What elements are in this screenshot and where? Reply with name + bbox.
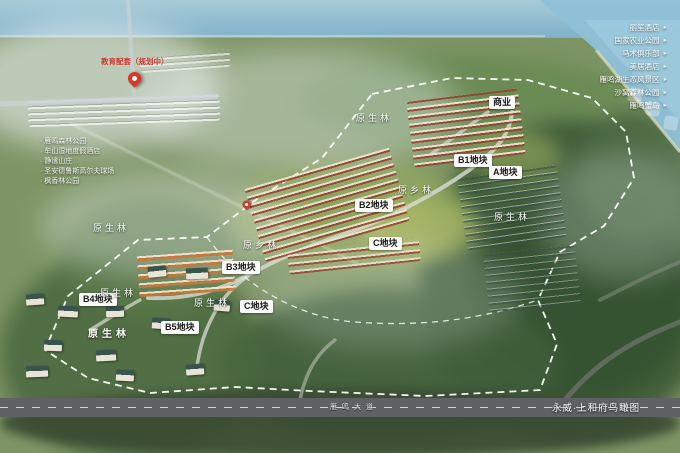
plot-label-b5: B5地块 (161, 321, 199, 334)
villa-building (106, 306, 124, 318)
villa-building (26, 293, 45, 305)
forest-label: 原乡林 (243, 238, 279, 251)
forest-label: 原生林 (194, 296, 230, 309)
amenity-item: 国家农业公园► (600, 35, 668, 48)
amenity-item: 马术俱乐部► (600, 48, 668, 61)
amenity-item: 美居酒店► (600, 61, 668, 74)
plot-label-a: A地块 (489, 166, 522, 179)
forest-label: 原生林 (100, 286, 136, 299)
amenity-item: 雁鸣森林公园 (40, 137, 114, 147)
watermark-icon (645, 101, 661, 117)
villa-building (186, 267, 209, 279)
arrow-icon: ► (663, 36, 668, 47)
amenity-item: 雁鸣湖生态风景区► (600, 74, 668, 87)
arrow-icon: ► (663, 101, 668, 112)
arrow-icon: ► (663, 88, 668, 99)
watermark-icon (663, 115, 679, 131)
avenue-name-label: 雁鸣大道 (330, 402, 378, 412)
amenity-item: 枫香林公园 (40, 177, 114, 187)
forest-label: 原生林 (93, 221, 129, 234)
arrow-icon: ► (663, 62, 668, 73)
arrow-icon: ► (663, 49, 668, 60)
business-label: 商业 (489, 96, 515, 109)
plot-label-c-upper: C地块 (369, 237, 402, 250)
arrow-icon: ► (663, 23, 668, 34)
forest-label: 原乡林 (398, 183, 434, 196)
forest-label: 原生林 (356, 111, 392, 124)
villa-building (186, 363, 205, 375)
watermark-icon (627, 87, 643, 103)
plot-label-b2: B2地块 (355, 199, 393, 212)
forest-label: 原生林 (494, 210, 530, 223)
amenity-item: 牟山湿地度假酒店 (40, 147, 114, 157)
villa-building (116, 370, 135, 382)
masterplan-aerial-map: 教育配套（规划中） 商业 B1地块 A地块 B2地块 C地块 B3地块 C地块 … (0, 0, 680, 453)
villa-building (26, 366, 48, 378)
education-planned-label: 教育配套（规划中） (101, 56, 169, 67)
amenity-item: 静谧山庄 (40, 157, 114, 167)
amenity-item: 圣安德鲁斯高尔夫球场 (40, 167, 114, 177)
amenity-item: 丽笙酒店► (600, 22, 668, 35)
arrow-icon: ► (663, 75, 668, 86)
villa-building (58, 305, 79, 317)
plot-label-b1: B1地块 (454, 154, 492, 167)
forest-label: 原生林 (88, 325, 130, 340)
project-caption: 永威·上和府鸟瞰图 (552, 400, 640, 414)
villa-building (44, 340, 62, 352)
building-cluster-right (483, 245, 581, 312)
amenity-list-left: 雁鸣森林公园 牟山湿地度假酒店 静谧山庄 圣安德鲁斯高尔夫球场 枫香林公园 (40, 137, 114, 187)
plot-label-c-lower: C地块 (240, 300, 273, 313)
villa-building (96, 349, 117, 361)
plot-label-b3: B3地块 (222, 261, 260, 274)
villa-building (147, 265, 166, 278)
